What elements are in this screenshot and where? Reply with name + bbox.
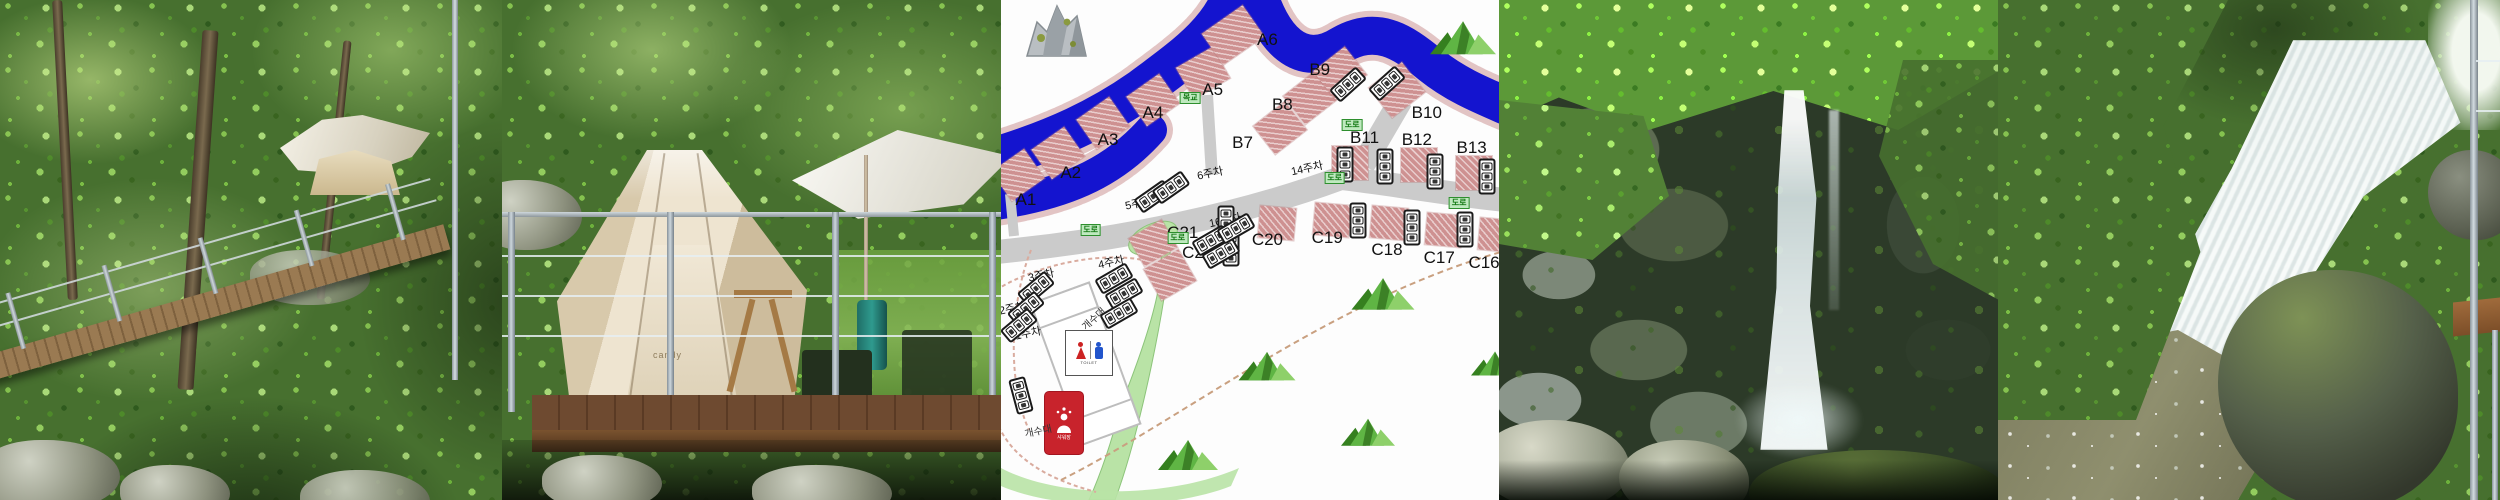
railing-cable xyxy=(2476,60,2500,62)
parking-spaces-icon xyxy=(1349,203,1366,239)
car-space xyxy=(1429,178,1440,186)
site-label: C16 xyxy=(1468,253,1499,273)
parking-spaces-icon xyxy=(1376,149,1393,185)
bottom-shadow xyxy=(1499,460,1998,500)
waterfall-mist xyxy=(1734,380,1864,460)
shower-glyph xyxy=(1053,405,1075,435)
railing-post xyxy=(2470,0,2478,500)
car-space xyxy=(1429,158,1440,166)
site-label: B10 xyxy=(1412,103,1442,123)
site-label: A5 xyxy=(1202,80,1223,100)
car-space xyxy=(1482,183,1493,191)
car-space xyxy=(1407,213,1418,221)
car-space xyxy=(1379,153,1390,161)
site-label: C20 xyxy=(1252,230,1283,250)
site-label: A6 xyxy=(1257,30,1278,50)
railing-post xyxy=(832,212,839,412)
car-space xyxy=(1352,217,1363,225)
railing-top-rail xyxy=(502,212,1001,217)
railing-post xyxy=(508,212,515,412)
mountain-icon xyxy=(1156,438,1220,477)
site-label: C18 xyxy=(1371,240,1402,260)
road-tag: 도로 xyxy=(1449,197,1470,209)
car-space xyxy=(1340,161,1351,169)
site-label: B13 xyxy=(1456,138,1486,158)
female-figure-icon xyxy=(1076,342,1086,359)
mountain-icon xyxy=(1339,417,1397,452)
road-tag: 도로 xyxy=(1080,224,1101,236)
road-tag: 도로 xyxy=(1167,232,1188,244)
mountain-icon xyxy=(1428,19,1498,62)
car-space xyxy=(1352,207,1363,215)
bridge-tag: 목교 xyxy=(1180,92,1201,104)
site-label: A1 xyxy=(1015,190,1036,210)
tent-deck-photo: candy xyxy=(502,0,1001,500)
site-label: A4 xyxy=(1142,103,1163,123)
site-label: B8 xyxy=(1272,95,1293,115)
car-space xyxy=(1018,400,1031,411)
canvas-tent: candy xyxy=(557,150,807,420)
car-space xyxy=(1379,173,1390,181)
site-label: A3 xyxy=(1098,130,1119,150)
railing-post xyxy=(2492,330,2498,500)
car-space xyxy=(1407,223,1418,231)
steel-pole xyxy=(452,0,458,380)
parking-spaces-icon xyxy=(1426,154,1443,190)
site-label: C19 xyxy=(1312,228,1343,248)
mountain-icon xyxy=(1236,350,1297,387)
site-label: B9 xyxy=(1309,60,1330,80)
photo-collage: candy xyxy=(0,0,2500,500)
shower-label: 샤워장 xyxy=(1057,436,1071,441)
site-label: A2 xyxy=(1060,163,1081,183)
camp-gear xyxy=(902,330,972,400)
campsite-rect xyxy=(1477,217,1499,252)
parking-spaces-icon xyxy=(1404,209,1421,245)
railing-cable xyxy=(502,335,1001,337)
toilet-label: TOILET xyxy=(1081,360,1098,365)
car-space xyxy=(1220,209,1231,217)
car-space xyxy=(1459,226,1470,234)
car-space xyxy=(1482,173,1493,181)
stream-photo xyxy=(1998,0,2500,500)
side-rivulet xyxy=(1829,110,1839,310)
wooden-deck xyxy=(532,395,1001,435)
railing-cable xyxy=(502,295,1001,297)
site-label: C17 xyxy=(1424,248,1455,268)
railing-cable xyxy=(2476,110,2500,112)
car-space xyxy=(1407,233,1418,241)
divider xyxy=(1090,341,1091,359)
car-space xyxy=(1340,151,1351,159)
road-tag: 도로 xyxy=(1324,172,1345,184)
site-label: B7 xyxy=(1232,133,1253,153)
male-figure-icon xyxy=(1095,342,1103,359)
parking-spaces-icon xyxy=(1456,212,1473,248)
toilet-icon: TOILET xyxy=(1065,330,1113,376)
mountain-icon xyxy=(1470,350,1499,381)
road-tag: 도로 xyxy=(1342,119,1363,131)
parking-spaces-icon xyxy=(1479,159,1496,195)
car-space xyxy=(1429,168,1440,176)
mountain-icon xyxy=(1349,276,1416,317)
car-space xyxy=(1379,163,1390,171)
car-space xyxy=(1352,227,1363,235)
rock-crag-icon xyxy=(1023,2,1089,65)
railing-post xyxy=(989,212,996,412)
toilet-figures xyxy=(1076,341,1103,359)
waterfall-photo xyxy=(1499,0,1998,500)
campground-map: TOILET 샤워장 A1A2A3A4A5A6B7B8B9B10B11B12B1… xyxy=(1001,0,1499,500)
car-space xyxy=(1459,216,1470,224)
railing-cable xyxy=(502,255,1001,257)
car-space xyxy=(1459,236,1470,244)
forest-walkway-photo xyxy=(0,0,502,500)
railing-post xyxy=(667,212,674,412)
site-label: B12 xyxy=(1402,130,1432,150)
car-space xyxy=(1482,163,1493,171)
